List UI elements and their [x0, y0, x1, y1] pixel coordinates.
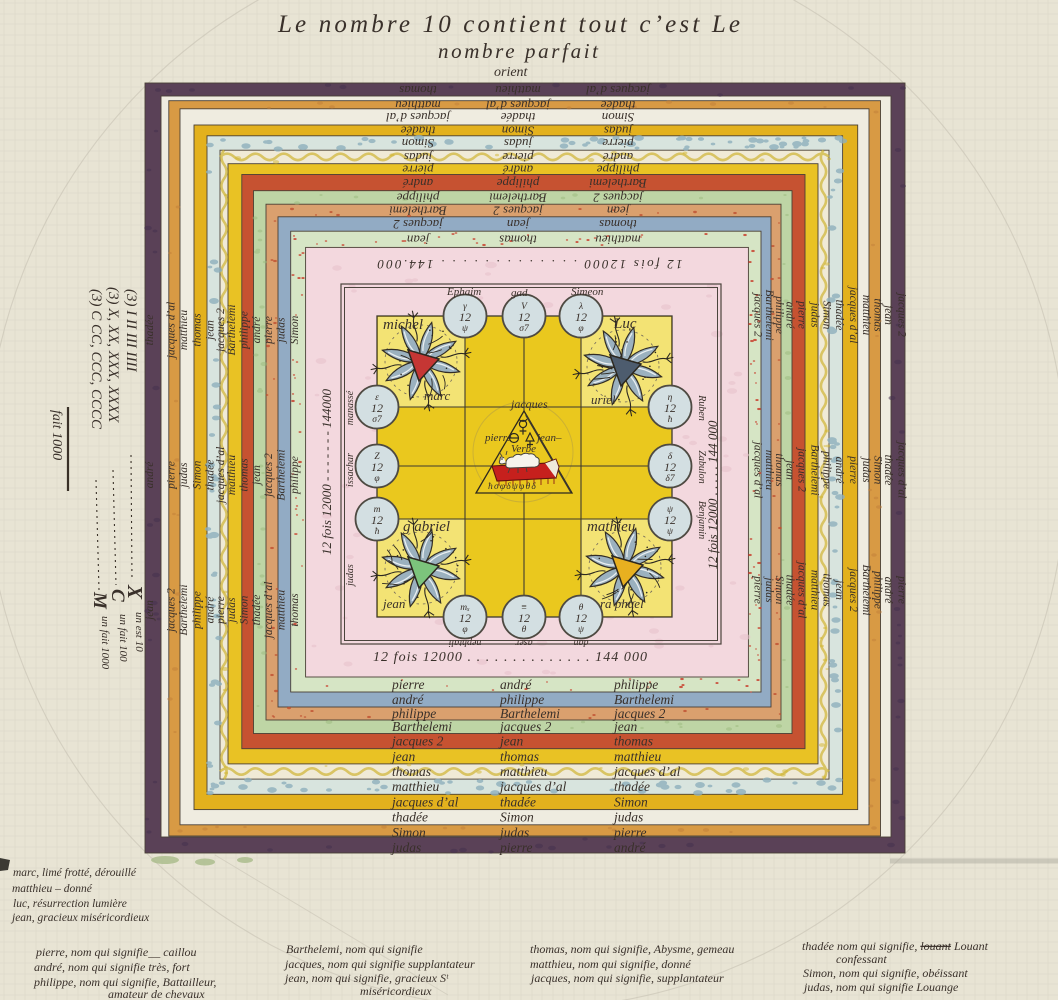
svg-text:matthieu: matthieu — [595, 233, 641, 248]
svg-text:philippe: philippe — [496, 176, 540, 191]
svg-text:philippe: philippe — [289, 456, 301, 495]
svg-text:michel: michel — [383, 317, 423, 333]
svg-text:ħσφδψφθδ: ħσφδψφθδ — [488, 482, 537, 492]
svg-text:jean: jean — [833, 578, 845, 600]
svg-text:jacques d’al: jacques d’al — [752, 440, 764, 499]
svg-text:pierre: pierre — [165, 461, 177, 490]
svg-text:Simon: Simon — [821, 301, 833, 330]
svg-text:thadée: thadée — [500, 110, 535, 125]
svg-text:jacques 2: jacques 2 — [393, 217, 445, 232]
svg-text:mathieu: mathieu — [587, 519, 635, 535]
svg-text:Barthelemi: Barthelemi — [178, 584, 190, 635]
svg-text:orient: orient — [494, 65, 529, 80]
svg-text:jean: jean — [612, 719, 637, 734]
svg-text:Simon: Simon — [402, 136, 435, 151]
svg-text:judas: judas — [390, 840, 421, 855]
svg-text:judas: judas — [504, 136, 534, 151]
svg-text:philippe: philippe — [239, 311, 251, 350]
svg-text:Barthelemi: Barthelemi — [614, 692, 674, 707]
svg-text:manassé: manassé — [345, 390, 356, 425]
svg-text:σ7: σ7 — [519, 324, 530, 334]
svg-text:thomas: thomas — [392, 764, 431, 779]
svg-text:jacques 2: jacques 2 — [493, 204, 545, 219]
svg-text:12 fois 12000 . . . . . 144 00: 12 fois 12000 . . . . . 144 000 — [705, 420, 720, 569]
svg-text:jean, gracieux miséricordieux: jean, gracieux miséricordieux — [10, 912, 150, 924]
svg-text:Barthelemi: Barthelemi — [226, 304, 238, 355]
svg-text:12: 12 — [371, 401, 383, 415]
svg-text:Benjamin: Benjamin — [696, 501, 707, 539]
svg-text:jean: jean — [381, 596, 405, 611]
svg-text:andré: andré — [402, 176, 434, 191]
svg-text:fait 1000: fait 1000 — [49, 410, 64, 460]
svg-text:jacques d’al: jacques d’al — [386, 110, 452, 125]
svg-text:pierre: pierre — [752, 575, 764, 604]
svg-text:luc, résurrection lumière: luc, résurrection lumière — [13, 898, 127, 910]
svg-text:δ7: δ7 — [665, 474, 675, 484]
svg-text:confessant: confessant — [836, 952, 887, 966]
svg-text:aser: aser — [515, 637, 532, 648]
svg-text:Barthelemi: Barthelemi — [809, 444, 821, 495]
svg-text:thadée: thadée — [144, 315, 156, 346]
svg-text:12: 12 — [575, 611, 587, 625]
svg-text:12: 12 — [459, 611, 471, 625]
svg-text:thadée nom qui signifie, louan: thadée nom qui signifie, louant Louant — [802, 939, 989, 953]
svg-text:Simon: Simon — [192, 460, 204, 489]
svg-text:un fait 1000: un fait 1000 — [99, 616, 111, 670]
svg-text:Barthelemi: Barthelemi — [389, 204, 447, 219]
svg-text:jean: jean — [390, 749, 415, 764]
svg-text:pierre: pierre — [796, 300, 808, 329]
svg-text:(3) I II III IIII: (3) I II III IIII — [123, 289, 139, 372]
svg-text:jacques 2: jacques 2 — [263, 453, 275, 499]
svg-text:φ: φ — [578, 324, 583, 334]
svg-text:thomas: thomas — [239, 458, 251, 492]
svg-text:judas: judas — [763, 576, 775, 603]
svg-text:pierre: pierre — [499, 840, 533, 855]
svg-text:philippe: philippe — [613, 677, 658, 692]
svg-text:andré: andré — [502, 163, 534, 178]
svg-text:judas: judas — [809, 301, 821, 328]
svg-text:jacques, nom qui signifie, sup: jacques, nom qui signifie, supplantateur — [529, 971, 724, 985]
svg-text:12: 12 — [518, 611, 530, 625]
svg-text:jacques d’al: jacques d’al — [390, 795, 459, 810]
svg-text:pierre: pierre — [484, 432, 512, 444]
svg-text:Zabulon: Zabulon — [696, 450, 707, 483]
svg-text:dan: dan — [574, 637, 589, 648]
svg-text:matthieu: matthieu — [226, 455, 238, 495]
svg-text:jacques 2: jacques 2 — [593, 191, 645, 206]
svg-text:pierre: pierre — [391, 677, 425, 692]
svg-text:Barthelemi: Barthelemi — [763, 289, 775, 340]
svg-text:12: 12 — [664, 513, 676, 527]
svg-text:un est 10: un est 10 — [133, 612, 145, 652]
svg-text:issachar: issachar — [345, 453, 356, 487]
svg-text:jacques d’al: jacques d’al — [796, 560, 808, 619]
svg-text:philippe: philippe — [396, 191, 440, 206]
svg-text:jean: jean — [607, 204, 631, 219]
svg-text:gad: gad — [511, 287, 528, 299]
svg-text:pierre: pierre — [613, 825, 647, 840]
svg-text:thomas, nom qui signifie, Abys: thomas, nom qui signifie, Abysme, gemeau — [530, 942, 734, 956]
svg-text:Simon, nom qui signifie, obéis: Simon, nom qui signifie, obéissant — [803, 966, 968, 980]
svg-text:jacques d’al: jacques d’al — [896, 440, 908, 499]
svg-text:pierre, nom qui signifie__ cai: pierre, nom qui signifie__ caillou — [35, 945, 197, 959]
svg-text:judas: judas — [860, 456, 872, 483]
svg-text:φ: φ — [462, 625, 467, 635]
svg-text:Le nombre 10 contient tout c’e: Le nombre 10 contient tout c’est Le — [277, 11, 740, 38]
svg-text:θ: θ — [522, 625, 527, 635]
svg-text:matthieu – donné: matthieu – donné — [12, 883, 93, 895]
svg-text:thomas: thomas — [399, 83, 437, 98]
svg-text:jacques 2: jacques 2 — [796, 446, 808, 492]
svg-text:12 fois 12000 . . . . . . . .: 12 fois 12000 . . . . . . . . . . . . . … — [373, 650, 647, 665]
svg-text:thomas: thomas — [599, 217, 637, 232]
svg-text:jean–: jean– — [535, 432, 562, 444]
svg-text:marc: marc — [424, 388, 450, 403]
svg-text:matthieu: matthieu — [178, 310, 190, 350]
svg-text:andré: andré — [392, 692, 425, 707]
svg-text:matthieu, nom qui signifie, do: matthieu, nom qui signifie, donné — [530, 957, 691, 971]
svg-text:jacques d’al: jacques d’al — [586, 83, 652, 98]
svg-text:amateur de chevaux: amateur de chevaux — [108, 987, 205, 1000]
svg-text:jacques 2: jacques 2 — [498, 719, 552, 734]
svg-text:Simon: Simon — [239, 595, 251, 624]
svg-text:judas: judas — [612, 810, 643, 825]
svg-text:philippe: philippe — [499, 692, 544, 707]
svg-text:jacques d’al: jacques d’al — [847, 285, 859, 344]
svg-text:judas: judas — [178, 462, 190, 489]
svg-text:philippe: philippe — [192, 591, 204, 630]
svg-text:matthieu: matthieu — [860, 295, 872, 335]
svg-text:jacques 2: jacques 2 — [847, 566, 859, 612]
svg-text:matthieu: matthieu — [495, 83, 541, 98]
svg-text:Simon: Simon — [392, 825, 426, 840]
svg-text:andré: andré — [144, 461, 156, 489]
svg-text:jean: jean — [251, 465, 263, 487]
svg-text:thomas: thomas — [499, 233, 537, 248]
svg-text:Barthelemi: Barthelemi — [275, 449, 287, 500]
svg-text:Barthelemi: Barthelemi — [392, 719, 452, 734]
svg-text:ħ: ħ — [668, 415, 673, 425]
svg-text:jacques: jacques — [509, 397, 548, 411]
svg-text:12: 12 — [518, 310, 530, 324]
svg-text:jacques 2: jacques 2 — [390, 734, 444, 749]
svg-text:12: 12 — [371, 460, 383, 474]
svg-text:thadée: thadée — [614, 779, 650, 794]
svg-text:jean, nom qui signifie, gracie: jean, nom qui signifie, gracieux Sᵗ — [283, 971, 449, 985]
svg-text:jean: jean — [498, 734, 523, 749]
svg-text:judas: judas — [226, 597, 238, 624]
svg-text:ra phael: ra phael — [600, 596, 644, 611]
svg-text:jean: jean — [407, 233, 431, 248]
svg-text:thadée: thadée — [392, 810, 428, 825]
svg-text:12: 12 — [459, 310, 471, 324]
svg-text:jacques d’al: jacques d’al — [165, 302, 177, 361]
svg-text:thadée: thadée — [833, 300, 845, 331]
svg-text:Luc: Luc — [613, 316, 637, 332]
svg-text:miséricordieux: miséricordieux — [360, 984, 432, 998]
svg-text:φ: φ — [374, 474, 379, 484]
svg-text:uriel: uriel — [591, 392, 616, 407]
svg-text:12: 12 — [371, 513, 383, 527]
svg-text:12: 12 — [575, 310, 587, 324]
svg-text:Simon: Simon — [289, 315, 301, 344]
svg-text:matthieu: matthieu — [809, 570, 821, 610]
svg-text:andré: andré — [251, 316, 263, 344]
svg-text:12 fois 12000 . . . . . . . .: 12 fois 12000 . . . . . . . . . . . . . … — [377, 257, 683, 272]
svg-text:Ruben: Ruben — [696, 394, 707, 421]
svg-text:Barthelemi: Barthelemi — [589, 176, 647, 191]
svg-text:judas: judas — [498, 825, 529, 840]
svg-text:12: 12 — [664, 401, 676, 415]
svg-text:marc, limé frotté, dérouillé: marc, limé frotté, dérouillé — [13, 867, 137, 879]
svg-text:Simon: Simon — [614, 795, 648, 810]
svg-text:thadée: thadée — [500, 795, 536, 810]
svg-text:jacques 2: jacques 2 — [896, 291, 908, 337]
svg-text:pierre: pierre — [402, 163, 435, 178]
svg-text:pierre: pierre — [847, 455, 859, 484]
svg-text:thomas: thomas — [872, 298, 884, 332]
svg-text:matthieu: matthieu — [275, 590, 287, 630]
svg-text:jacques, nom qui signifie supp: jacques, nom qui signifie supplantateur — [283, 957, 475, 971]
svg-text:judas: judas — [345, 564, 356, 588]
svg-text:philippe: philippe — [596, 163, 640, 178]
svg-text:andré, nom qui signifie très,: andré, nom qui signifie très, fort — [34, 960, 190, 974]
svg-text:matthieu: matthieu — [763, 450, 775, 490]
svg-text:andré: andré — [614, 840, 647, 855]
svg-text:matthieu: matthieu — [614, 749, 661, 764]
svg-text:judas, nom qui signifie Louang: judas, nom qui signifie Louange — [802, 980, 959, 994]
svg-text:pierre: pierre — [896, 575, 908, 604]
svg-text:thomas: thomas — [821, 573, 833, 607]
svg-text:thomas: thomas — [289, 593, 301, 627]
svg-text:pierre: pierre — [602, 136, 635, 151]
svg-text:M: M — [89, 591, 110, 610]
svg-text:philippe: philippe — [821, 450, 833, 489]
svg-text:jacques d’al: jacques d’al — [612, 764, 681, 779]
svg-text:ħ: ħ — [375, 527, 380, 537]
svg-text:un fait 100: un fait 100 — [117, 614, 129, 662]
svg-text:jacques d’al: jacques d’al — [498, 779, 567, 794]
svg-text:Barthelemi: Barthelemi — [860, 564, 872, 615]
svg-text:Simeon: Simeon — [571, 286, 604, 298]
svg-text:σ7: σ7 — [372, 415, 383, 425]
svg-text:Ephaim: Ephaim — [446, 286, 481, 298]
svg-text:12: 12 — [664, 460, 676, 474]
svg-text:jacques d’al: jacques d’al — [263, 582, 275, 641]
svg-text:g abriel: g abriel — [403, 519, 450, 535]
svg-text:Simon: Simon — [500, 810, 534, 825]
svg-text:nephtali: nephtali — [448, 637, 481, 648]
svg-text:(3) C CC, CCC, CCCC: (3) C CC, CCC, CCCC — [88, 289, 104, 430]
svg-text:thadée: thadée — [251, 595, 263, 626]
svg-text:judas: judas — [275, 317, 287, 344]
svg-text:jacques 2: jacques 2 — [752, 291, 764, 337]
svg-text:matthieu: matthieu — [392, 779, 439, 794]
svg-text:(3) X, XX, XXX, XXXX: (3) X, XX, XXX, XXXX — [105, 287, 121, 423]
svg-text:matthieu: matthieu — [500, 764, 547, 779]
svg-text:Barthelemi: Barthelemi — [489, 191, 547, 206]
svg-text:thomas: thomas — [192, 313, 204, 347]
svg-text:Barthelemi, nom qui signifie: Barthelemi, nom qui signifie — [286, 942, 423, 956]
svg-text:thomas: thomas — [500, 749, 539, 764]
svg-text:Simon: Simon — [872, 456, 884, 485]
svg-text:andré: andré — [500, 677, 533, 692]
svg-text:Simon: Simon — [602, 110, 635, 125]
svg-text:12 fois 12000 - - - - - - - 14: 12 fois 12000 - - - - - - - 144000 — [319, 388, 334, 555]
svg-text:jean: jean — [507, 217, 531, 232]
svg-text:pierre: pierre — [263, 316, 275, 345]
svg-text:philippe: philippe — [872, 570, 884, 609]
svg-text:andré: andré — [833, 457, 845, 485]
svg-text:jacques 2: jacques 2 — [165, 588, 177, 634]
svg-text:thomas: thomas — [614, 734, 653, 749]
